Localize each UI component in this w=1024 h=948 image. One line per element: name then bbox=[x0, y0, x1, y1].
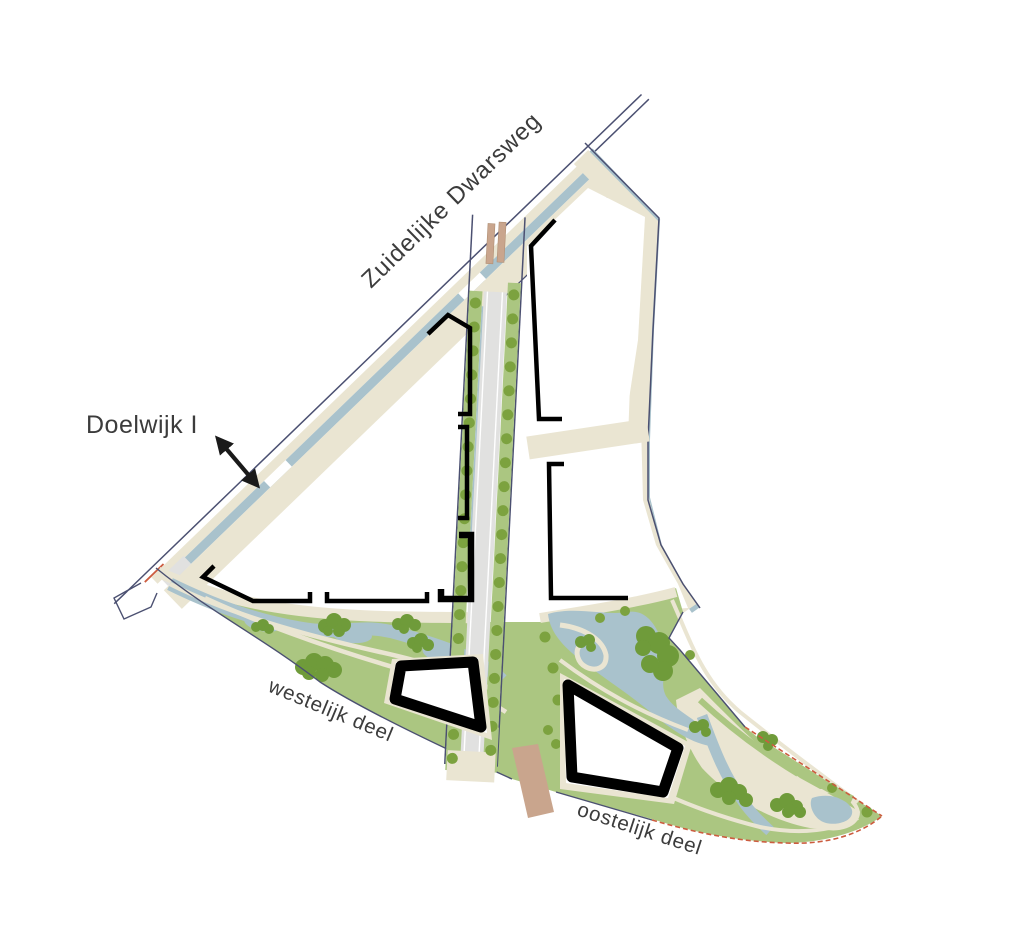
site-plan-page: Zuidelijke Dwarsweg Doelwijk I westelijk… bbox=[0, 0, 1024, 948]
site-plan-map: Zuidelijke Dwarsweg Doelwijk I westelijk… bbox=[0, 0, 1024, 948]
label-doelwijk: Doelwijk I bbox=[86, 411, 198, 439]
corridor-end-notch bbox=[114, 583, 157, 619]
building-outline bbox=[327, 592, 427, 601]
park-area bbox=[156, 568, 882, 843]
corridor-outer-line-2 bbox=[586, 99, 649, 160]
double-arrow-icon bbox=[218, 439, 257, 485]
corridor-canal bbox=[286, 293, 465, 466]
